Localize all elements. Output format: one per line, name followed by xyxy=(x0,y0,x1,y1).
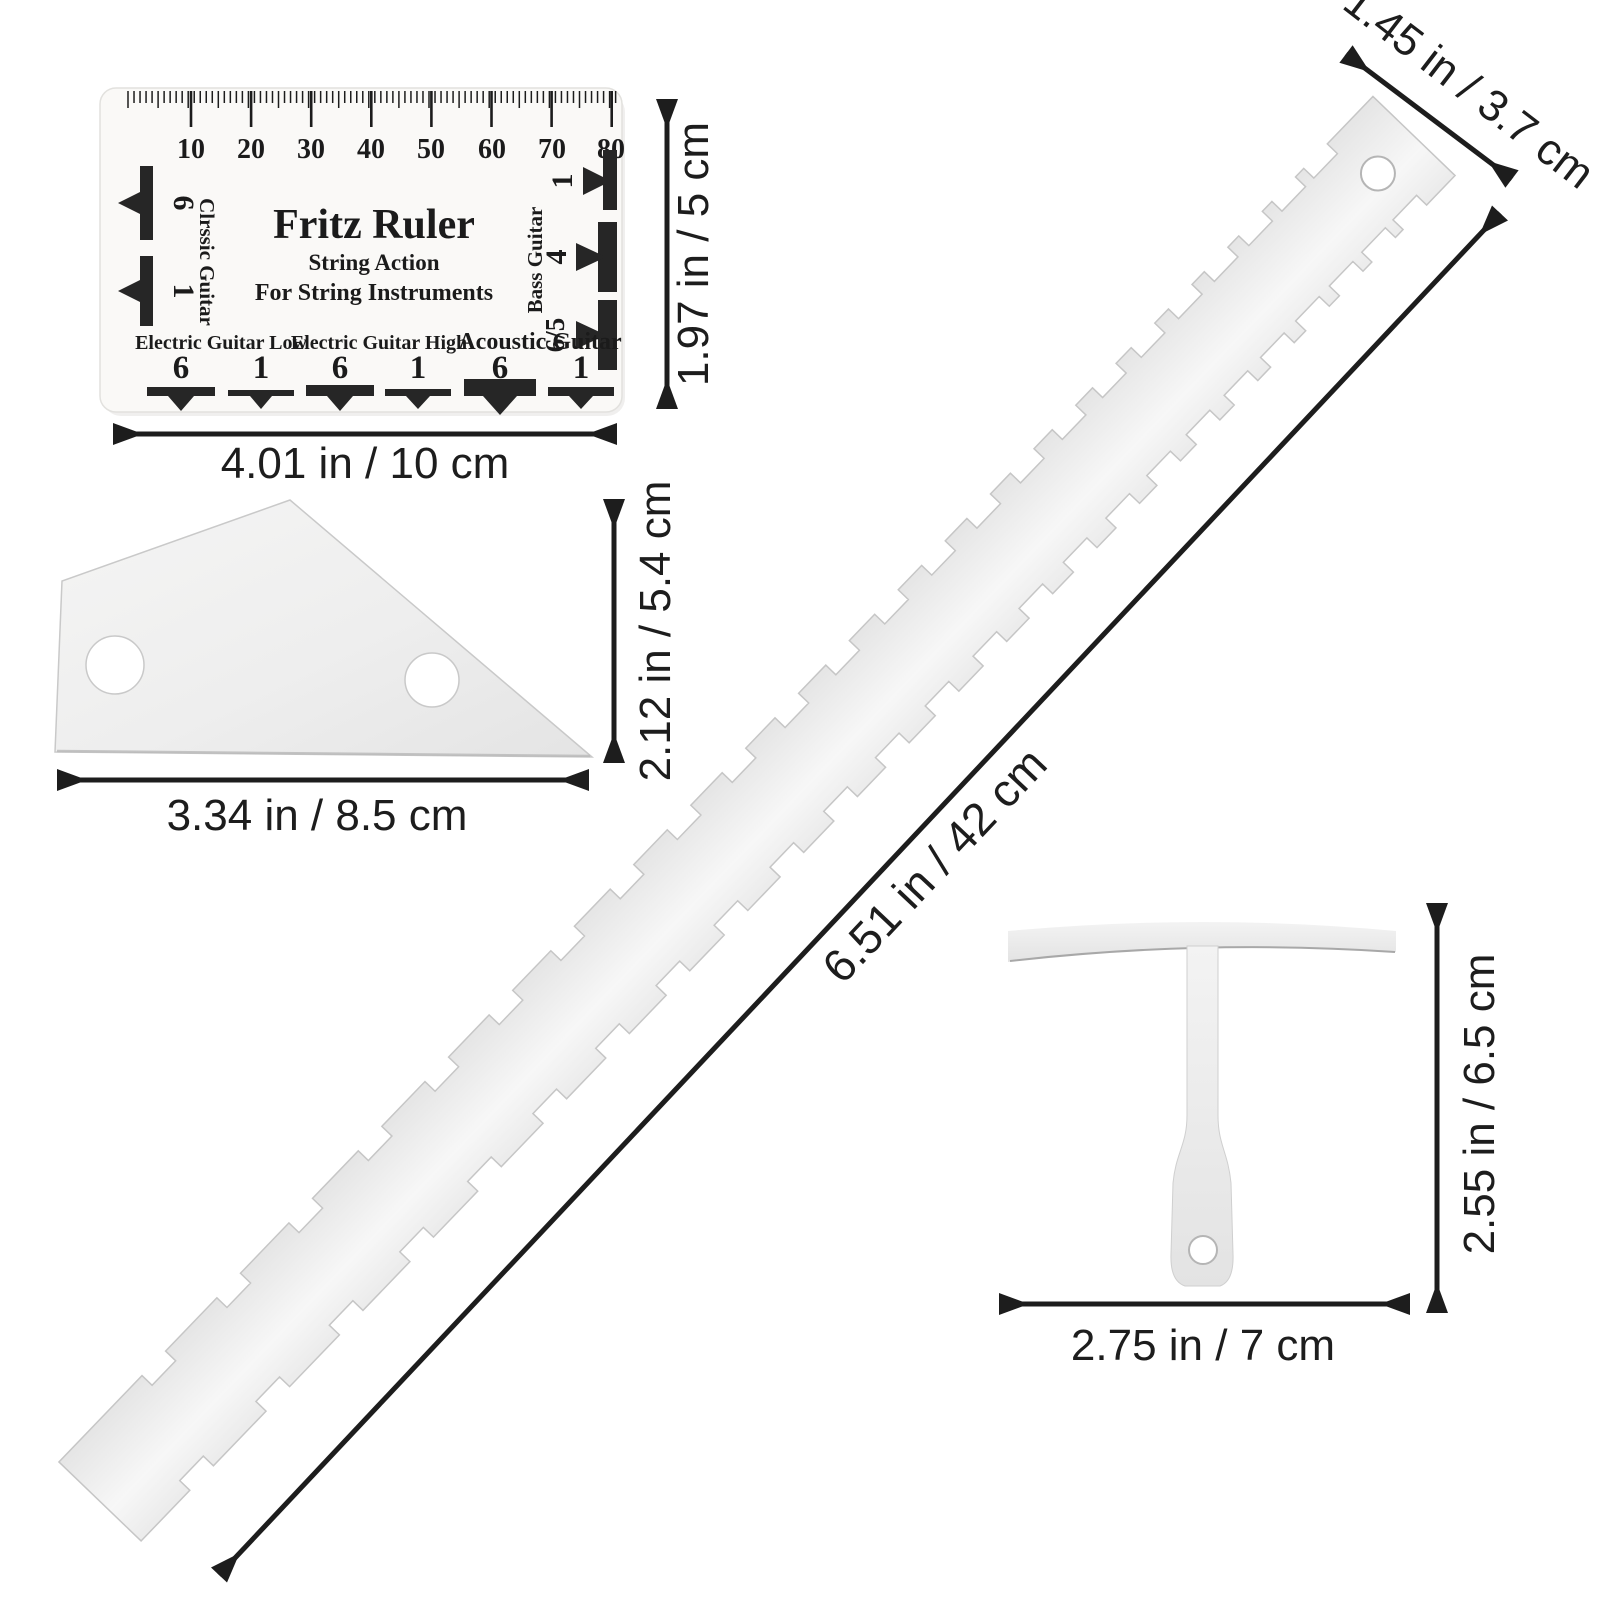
string-action-card: 10 20 30 40 50 60 70 80 Fritz Ruler Stri… xyxy=(100,88,625,416)
classic-guitar-label: Clrssic Guitar xyxy=(195,198,219,326)
card-width-dimension: 4.01 in / 10 cm xyxy=(221,439,510,488)
rocker-width-dimension: 3.34 in / 8.5 cm xyxy=(167,791,468,840)
fret-rocker-body xyxy=(55,500,592,757)
t-gauge-width-dimension: 2.75 in / 7 cm xyxy=(1071,1321,1335,1370)
gauge-value: 6 xyxy=(332,350,349,386)
gauge-bar xyxy=(385,389,451,396)
gauge-bar xyxy=(548,387,614,396)
straightedge-length-arrow xyxy=(219,213,1500,1575)
card-height-dimension: 1.97 in / 5 cm xyxy=(669,122,718,386)
scale-number: 60 xyxy=(478,134,506,165)
scale-number: 50 xyxy=(417,134,445,165)
scale-number: 10 xyxy=(177,134,205,165)
t-gauge xyxy=(1008,922,1396,1286)
gauge-value: 6 xyxy=(173,350,190,386)
gauge-value: 1 xyxy=(410,350,427,386)
fret-rocker xyxy=(55,500,592,757)
diagram-canvas: 10 20 30 40 50 60 70 80 Fritz Ruler Stri… xyxy=(0,0,1600,1600)
t-gauge-hole xyxy=(1189,1236,1217,1264)
scale-number: 30 xyxy=(297,134,325,165)
gauge-value: 1 xyxy=(573,350,590,386)
gauge-bar xyxy=(464,379,536,396)
card-subtitle-2: For String Instruments xyxy=(255,280,493,306)
scale-number: 20 xyxy=(237,134,265,165)
scale-number: 40 xyxy=(357,134,385,165)
gauge-value: 1 xyxy=(546,174,579,189)
t-gauge-height-dimension: 2.55 in / 6.5 cm xyxy=(1455,954,1504,1255)
card-title: Fritz Ruler xyxy=(273,202,475,248)
scale-number: 70 xyxy=(538,134,566,165)
group-label: Electric Guitar Low xyxy=(135,332,307,354)
t-gauge-handle xyxy=(1171,946,1233,1286)
rocker-height-dimension: 2.12 in / 5.4 cm xyxy=(631,481,680,782)
gauge-bar xyxy=(147,387,215,396)
card-subtitle: String Action xyxy=(309,250,440,275)
product-dimension-diagram: 10 20 30 40 50 60 70 80 Fritz Ruler Stri… xyxy=(0,0,1600,1600)
gauge-bar xyxy=(306,385,374,396)
bass-guitar-label: Bass Guitar xyxy=(523,207,547,314)
gauge-bar xyxy=(228,390,294,396)
gauge-value: 1 xyxy=(253,350,270,386)
group-label: Electric Guitar High xyxy=(291,332,467,354)
group-label: Acoustic Guitar xyxy=(458,329,622,355)
